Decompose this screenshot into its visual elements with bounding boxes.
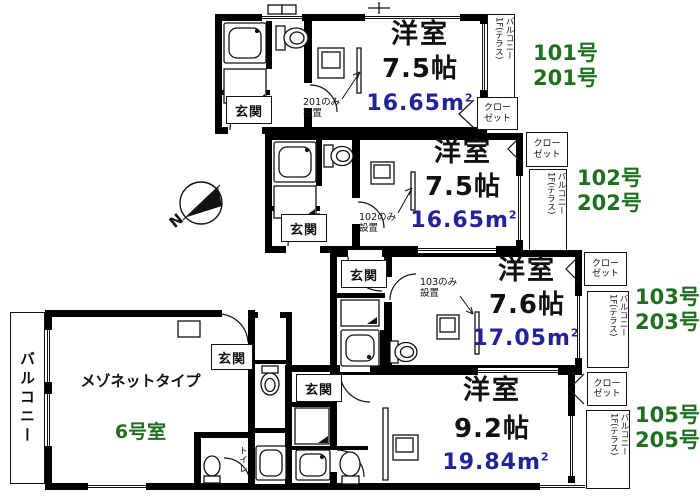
maisonette-type-label: メゾネットタイプ — [73, 374, 208, 390]
closet-101: クローゼット — [477, 97, 518, 130]
room-area-103: 17.05m2 — [462, 327, 590, 350]
bathtub-icon — [274, 142, 316, 182]
area-value: 16.65m — [410, 208, 509, 233]
closet-line: ゼット — [533, 150, 560, 160]
note-line: 設置 — [359, 223, 396, 234]
room-area-105: 19.84m2 — [432, 451, 560, 474]
bathtub-icon — [256, 446, 286, 480]
toilet-icon — [340, 452, 360, 484]
entrance-label-105: 玄関 — [296, 374, 342, 402]
balcony-line: バルコニー — [617, 294, 628, 367]
room-size-103: 7.6帖 — [472, 292, 582, 319]
area-value: 16.65m — [366, 91, 465, 116]
entrance-label-102: 玄関 — [281, 214, 327, 242]
north-arrow-icon: N — [166, 182, 222, 232]
unit-number-line: 103号 — [635, 285, 700, 310]
room-type-105: 洋室 — [437, 377, 547, 405]
balcony-line: 1F(テラス) — [607, 294, 618, 367]
note-line: 201のみ — [303, 97, 340, 108]
closet-105: クローゼット — [587, 372, 627, 406]
unit-number-102-202: 102号202号 — [577, 166, 642, 216]
toilet-icon — [276, 26, 308, 50]
area-sup: 2 — [541, 451, 550, 464]
entrance-label-101: 玄関 — [226, 96, 272, 124]
area-sup: 2 — [509, 209, 518, 222]
note-line: 103のみ — [420, 277, 457, 288]
balcony-line: 1F(テラス) — [493, 17, 504, 97]
unit-number-line: 102号 — [577, 166, 642, 191]
closet-103: クローゼット — [584, 252, 627, 286]
room-size-105: 9.2帖 — [437, 416, 547, 443]
note-line: 102のみ — [359, 212, 396, 223]
note-101: 201のみ設置 — [303, 97, 340, 120]
unit-number-line: 105号 — [635, 403, 700, 428]
closet-line: クロー — [533, 139, 560, 149]
north-label: N — [166, 210, 187, 232]
vent-marks — [268, 2, 390, 14]
toilet-label-6: トイレ — [236, 446, 249, 486]
unit-number-103-203: 103号203号 — [635, 285, 700, 335]
closet-line: ゼット — [593, 389, 620, 399]
entrance-label-103: 玄関 — [341, 260, 387, 288]
room-type-103: 洋室 — [472, 257, 582, 285]
entrance-label-6: 玄関 — [211, 344, 253, 370]
room-area-101: 16.65m2 — [358, 92, 482, 115]
room-area-102: 16.65m2 — [402, 209, 526, 232]
unit-number-6: 6号室 — [83, 423, 198, 443]
toilet-icon — [261, 366, 279, 395]
unit-number-line: 205号 — [635, 428, 700, 453]
area-sup: 2 — [465, 92, 474, 105]
unit-number-line: 201号 — [533, 66, 598, 91]
note-103: 103のみ設置 — [420, 277, 457, 300]
closet-line: クロー — [592, 259, 619, 269]
room-size-101: 7.5帖 — [365, 56, 475, 83]
room-type-101: 洋室 — [365, 21, 475, 49]
area-value: 17.05m — [472, 326, 571, 351]
balcony-105: バルコニー1F(テラス) — [586, 410, 630, 489]
counter-icon — [178, 321, 200, 337]
area-sup: 2 — [571, 327, 580, 340]
closet-line: ゼット — [484, 114, 511, 124]
kitchen-icon — [383, 408, 418, 480]
note-line: 設置 — [420, 288, 457, 299]
area-value: 19.84m — [442, 450, 541, 475]
toilet-icon — [390, 341, 417, 363]
bathtub-icon — [224, 23, 266, 63]
room-type-102: 洋室 — [408, 139, 518, 167]
note-line: 設置 — [303, 108, 340, 119]
balcony-103: バルコニー1F(テラス) — [587, 291, 629, 368]
room-size-102: 7.5帖 — [408, 174, 518, 201]
balcony-line: バルコニー — [503, 17, 514, 97]
balcony-101: バルコニー1F(テラス) — [487, 14, 515, 98]
unit-6-walls — [45, 310, 255, 490]
balcony-line: 1F(テラス) — [608, 413, 619, 488]
toilet-icon — [204, 456, 220, 483]
toilet-icon — [324, 145, 353, 167]
unit-number-101-201: 101号201号 — [533, 41, 598, 91]
kitchen-icon — [318, 48, 361, 93]
bathtub-icon — [341, 330, 379, 366]
closet-line: クロー — [593, 379, 620, 389]
closet-line: クロー — [484, 103, 511, 113]
unit-number-line: 202号 — [577, 191, 642, 216]
washer-icon — [341, 300, 379, 326]
floor-plan: N 洋室 7.5帖 16.65m2 玄関 201のみ設置 101号201号 クロ… — [0, 0, 700, 496]
unit-number-line: 101号 — [533, 41, 598, 66]
unit-number-105-205: 105号205号 — [635, 403, 700, 453]
washer-icon — [295, 408, 329, 444]
closet-line: ゼット — [592, 269, 619, 279]
note-102: 102のみ設置 — [359, 212, 396, 235]
balcony-line: バルコニー — [555, 172, 566, 250]
bathtub-icon — [296, 450, 330, 480]
balcony-6: バルコニー — [10, 312, 45, 484]
balcony-line: バルコニー — [618, 413, 629, 488]
closet-102: クローゼット — [526, 132, 568, 167]
unit-number-line: 203号 — [635, 310, 700, 335]
balcony-102: バルコニー1F(テラス) — [529, 169, 567, 251]
balcony-line: 1F(テラス) — [545, 172, 556, 250]
